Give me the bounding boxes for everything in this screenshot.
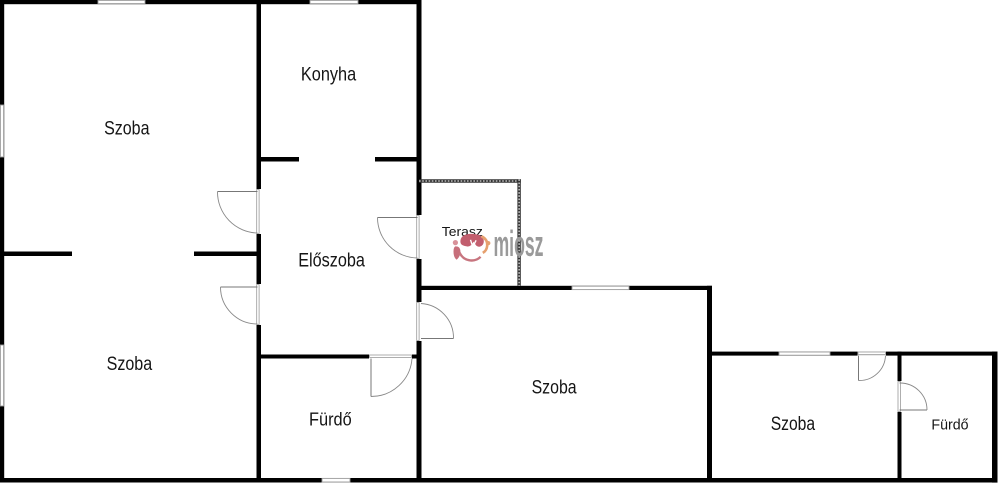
svg-text:Fürdő: Fürdő	[309, 409, 352, 430]
svg-text:Szoba: Szoba	[104, 118, 150, 139]
svg-text:Szoba: Szoba	[107, 354, 153, 375]
svg-text:Konyha: Konyha	[301, 63, 356, 85]
svg-text:Szoba: Szoba	[771, 414, 816, 435]
svg-text:miosz: miosz	[494, 223, 544, 264]
svg-text:Szoba: Szoba	[532, 377, 577, 398]
svg-text:Fürdő: Fürdő	[931, 417, 968, 433]
svg-text:Előszoba: Előszoba	[298, 251, 365, 272]
